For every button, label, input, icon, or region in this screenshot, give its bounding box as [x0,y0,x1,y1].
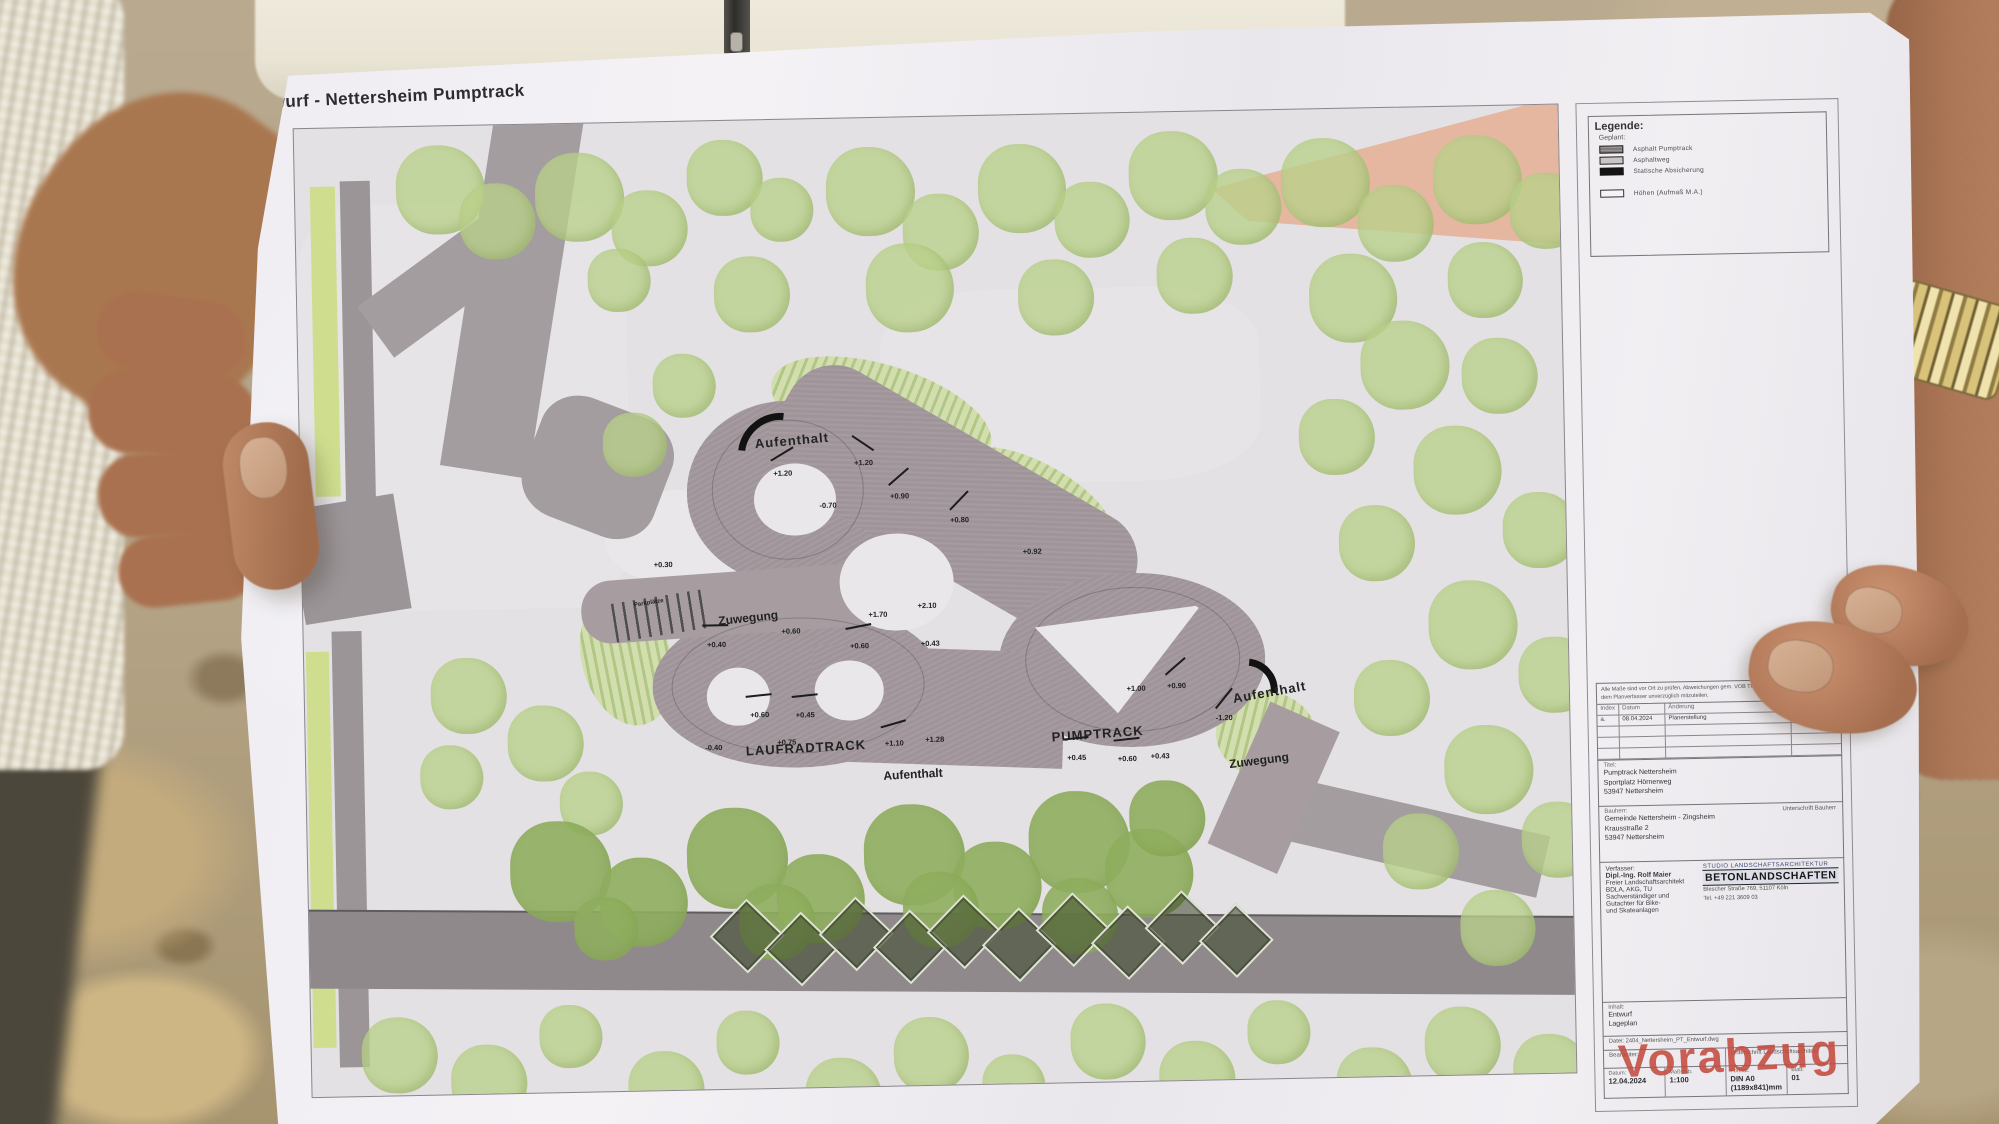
elevation-marker: +0.45 [1067,747,1086,765]
tree-symbol [1070,1003,1147,1080]
tree-symbol [1461,337,1538,414]
revision-cell [1792,744,1841,756]
tree-symbol [1357,184,1434,261]
hedge-diamond-row [294,105,1558,130]
elevation-value: +0.90 [890,491,909,500]
legend-label: Höhen (Aufmaß M.A.) [1634,188,1703,196]
tree-symbol [982,1053,1046,1097]
elevation-marker: +2.10 [917,595,936,613]
white-swatch [1600,189,1624,197]
firm-column: STUDIO LANDSCHAFTSARCHITEKTUR BETONLANDS… [1698,858,1846,999]
tree-symbol [1412,425,1502,515]
fingernail [1764,635,1838,698]
tree-symbol [1247,1000,1311,1065]
elevation-value: +0.80 [950,515,969,524]
elevation-value: +0.60 [750,711,769,720]
tree-symbol [419,745,483,810]
elevation-marker: +0.60 [781,621,800,639]
verfasser-column: Verfasser: Dipl.-Ing. Rolf Maier Freier … [1600,861,1700,1001]
tree-symbol-dark [1128,779,1205,856]
elevation-value: -1.20 [1216,713,1233,722]
revision-header-cell: Index [1597,705,1619,716]
elevation-marker: +0.30 [653,554,672,572]
elevation-marker: +1.28 [925,728,944,746]
tree-symbol [430,657,507,734]
elevation-marker: +0.60 [750,705,769,723]
plan-drawing-area: AufenthaltZuwegungLAUFRADTRACKPUMPTRACKA… [293,104,1578,1098]
elevation-value: +1.10 [885,739,904,748]
tree-symbol [628,1050,705,1097]
firm-address-lines: Blescher Straße 769, 51107 KölnTel. +49 … [1703,884,1839,904]
track-island [839,533,955,632]
elevation-value: +0.30 [654,560,673,569]
elevation-marker: +0.60 [1118,748,1137,766]
tree-symbol [713,255,790,332]
tree-symbol [1447,241,1524,318]
tree-symbol [805,1057,882,1098]
info-panel: Legende: Geplant: Asphalt PumptrackAspha… [1576,98,1858,1111]
track-swatch [1599,145,1623,153]
revision-cell: 08.04.2024 [1619,715,1665,727]
tree-symbol [1428,580,1518,670]
tree-symbol [1298,399,1375,476]
revision-cell [1598,738,1620,749]
verfasser-lines: Freier Landschaftsarchitekt BDLA, AKG, T… [1606,878,1694,915]
revision-cell [1598,727,1620,738]
printed-site-plan-sheet: Entwurf - Nettersheim Pumptrack [227,10,1931,1124]
elevation-value: +0.75 [777,737,796,746]
revision-cell [1598,749,1620,760]
tree-symbol [1053,181,1130,258]
elevation-value: -0.70 [819,501,836,510]
tree-symbol [1513,1033,1578,1098]
tree-symbol [768,1087,832,1098]
zipper-pull [730,32,743,52]
revision-cell: a. [1597,716,1619,727]
tree-symbol [538,1004,602,1069]
tree-canopies [294,105,1558,130]
revision-cell [1620,726,1666,738]
firm-address-line: Tel. +49 221 3609 03 [1703,892,1839,903]
verfasser-line: und Skateanlagen [1606,906,1694,915]
elevation-marker: +1.20 [854,452,873,470]
legend-row: Asphaltweg [1599,153,1821,165]
legend-items: Asphalt PumptrackAsphaltwegStatische Abs… [1595,142,1822,198]
legend-label: Asphalt Pumptrack [1633,145,1693,153]
elevation-value: +2.10 [917,601,936,610]
elevation-marker: +0.40 [707,634,726,652]
elevation-value: +0.60 [1118,754,1137,763]
plan-label: Aufenthalt [883,766,943,783]
tree-symbol [388,1094,452,1098]
tree-symbol [970,1092,1034,1097]
tree-symbol [1444,724,1534,814]
elevation-value: +0.92 [1023,547,1042,556]
tree-symbol [1502,491,1578,568]
revision-header-cell: Datum [1619,704,1665,716]
path-swatch [1599,156,1623,164]
plan-labels: AufenthaltZuwegungLAUFRADTRACKPUMPTRACKA… [294,105,1558,130]
elevation-value: +1.70 [868,610,887,619]
tree-symbol [1017,259,1094,336]
elevation-marker: -0.40 [705,737,722,755]
elevation-value: +1.20 [773,468,792,477]
legend-subtitle: Geplant: [1599,131,1821,142]
elevation-marker: +0.60 [850,635,869,653]
black-swatch [1599,167,1623,175]
elevation-marker: +1.70 [868,604,887,622]
elevation-marker: +1.10 [885,733,904,751]
elevation-value: +0.45 [796,711,815,720]
elevation-value: +0.43 [921,638,940,647]
tree-symbol [1360,320,1450,410]
tree-symbol [652,353,716,418]
legend-label: Statische Absicherung [1633,166,1704,174]
tree-symbol [1338,504,1415,581]
road [331,631,370,1067]
legend-row: Asphalt Pumptrack [1599,142,1821,154]
firm-name: BETONLANDSCHAFTEN [1703,868,1839,887]
section-bauherr: Bauherr: Unterschrift Bauherr Gemeinde N… [1598,802,1844,863]
tree-symbol [1375,1084,1439,1097]
elevation-value: -0.40 [705,743,722,752]
legend: Legende: Geplant: Asphalt PumptrackAspha… [1587,111,1829,257]
elevation-value: +0.45 [1067,753,1086,762]
tree-symbol [1336,1046,1413,1098]
section-titel: Titel: Pumptrack NettersheimSportplatz H… [1597,756,1843,807]
revision-cell [1620,748,1666,760]
tree-symbol [1354,659,1431,736]
tree-symbol [750,177,814,242]
section-verfasser: Verfasser: Dipl.-Ing. Rolf Maier Freier … [1599,858,1846,1002]
legend-row: Statische Absicherung [1599,164,1821,176]
tree-symbol [1172,1079,1236,1098]
elevation-value: +1.28 [925,734,944,743]
tree-symbol [716,1010,780,1075]
elevation-value: +0.60 [850,641,869,650]
sweater-zipper [724,0,750,56]
elevation-marker: +1.20 [773,462,792,480]
bauherr-lines: Gemeinde Nettersheim - ZingsheimKrausstr… [1604,811,1837,844]
tree-symbol [977,143,1067,233]
elevation-marker: +0.43 [1150,745,1169,763]
elevation-value: +0.60 [781,627,800,636]
legend-row: Höhen (Aufmaß M.A.) [1600,186,1822,198]
elevation-marker: +1.00 [1126,678,1145,696]
elevation-marker: +0.75 [777,731,796,749]
elevation-marker: +0.45 [796,705,815,723]
elevation-value: +0.40 [707,640,726,649]
tree-symbol [362,1017,439,1094]
legend-label: Asphaltweg [1633,156,1670,164]
tree-symbol [1382,813,1459,890]
tree-symbol [507,704,584,781]
thumbnail [236,434,291,501]
elevation-marker: +0.80 [950,509,969,527]
tree-symbol [1205,168,1282,245]
tree-symbol [603,412,667,477]
tree-symbol [1509,172,1578,249]
bauherr-signature-label: Unterschrift Bauherr [1782,806,1836,813]
tree-symbol [1424,1006,1501,1083]
tree-symbol [587,248,651,313]
elevation-tick [703,624,729,626]
tree-symbol [451,1044,528,1098]
elevation-marker: +0.90 [1167,675,1186,693]
elevation-marker: -0.70 [819,495,836,513]
elevation-marker: +0.43 [921,632,940,650]
tree-symbol [1518,636,1578,713]
tree-symbol [1156,237,1233,314]
tree-symbol [893,1016,970,1093]
elevation-markers: +1.20+1.20-0.70+0.90+0.80+0.40+0.60+0.60… [294,105,1558,130]
elevation-value: +1.20 [854,458,873,467]
elevation-value: +1.00 [1127,684,1146,693]
revision-cell [1620,737,1666,749]
elevation-marker: -1.20 [1216,707,1233,725]
titel-lines: Pumptrack NettersheimSportplatz Hörnerwe… [1604,765,1837,798]
photo-of-plan: Entwurf - Nettersheim Pumptrack [0,0,1999,1124]
elevation-value: +0.43 [1151,751,1170,760]
elevation-marker: +0.92 [1023,541,1042,559]
tree-symbol [1159,1040,1236,1098]
elevation-marker: +0.90 [890,485,909,503]
elevation-value: +0.90 [1167,681,1186,690]
